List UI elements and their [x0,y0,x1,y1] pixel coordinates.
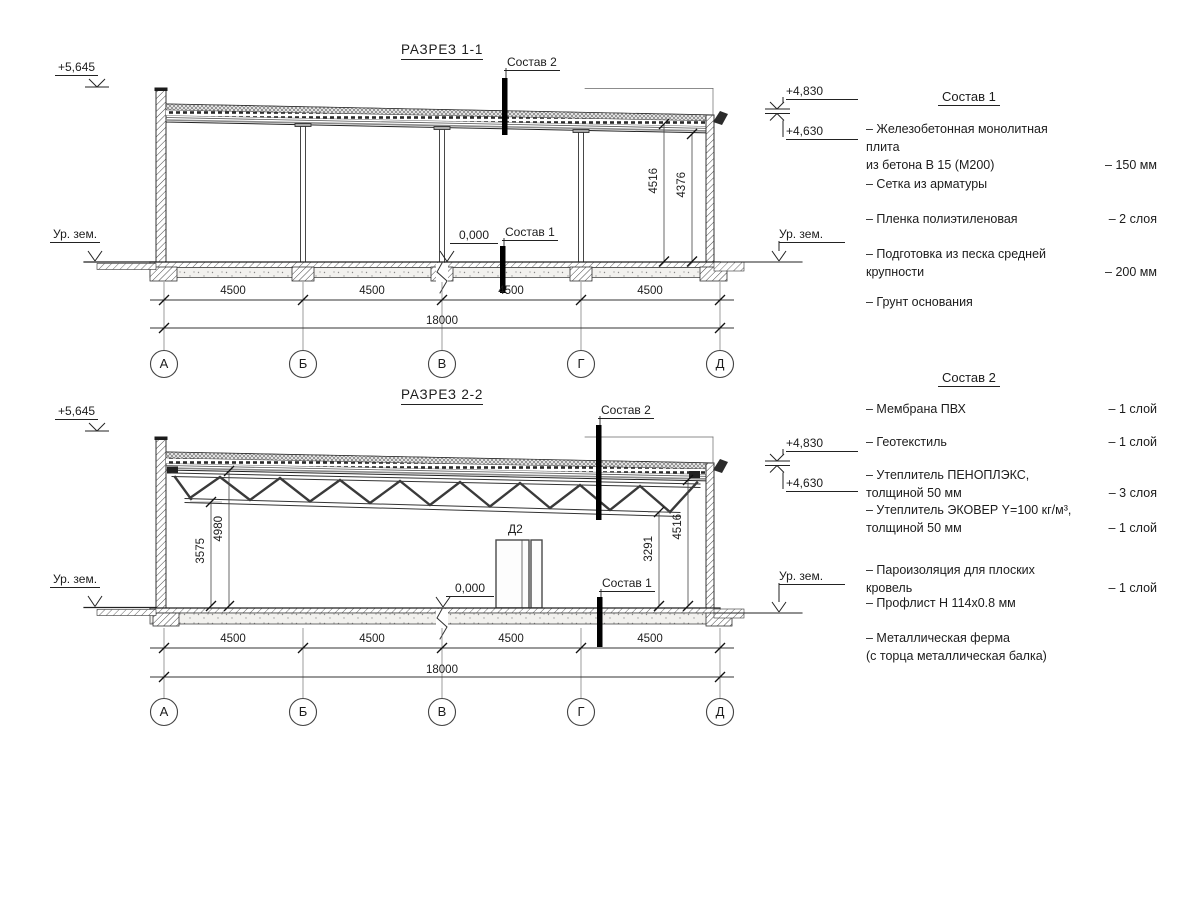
legend-item: – Профлист Н 114х0.8 мм [866,595,1157,613]
legend-item-name: – Утеплитель ЭКОВЕР Y=100 кг/м³, толщино… [866,502,1071,538]
legend-item-name: – Грунт основания [866,294,973,312]
legend2-title: Состав 2 [938,370,1000,387]
section2-elevation-roof-low: +4,630 [786,476,858,492]
section2-total-dim: 18000 [418,664,466,676]
legend-item-name: – Подготовка из песка средней крупности [866,246,1046,282]
legend-item: – Мембрана ПВХ – 1 слой [866,401,1157,419]
section1-axis-v: В [428,356,456,371]
section2-axis-v: В [428,704,456,719]
legend-item-name: – Профлист Н 114х0.8 мм [866,595,1016,613]
legend-item: – Железобетонная монолитная плита из бет… [866,121,1157,174]
section1-marker-sostav1: Состав 1 [502,225,558,241]
legend-item-value: – 200 мм [1099,264,1157,282]
section2-marker-sostav1: Состав 1 [599,576,655,592]
section2-axis-g: Г [567,704,595,719]
section1-axis-d: Д [706,356,734,371]
section2-marker-sostav2: Состав 2 [598,403,654,419]
section2-elevation-roof-top: +4,830 [786,436,858,452]
section1-elevation-roof-low: +4,630 [786,124,858,140]
section1-elevation-parapet: +5,645 [55,60,98,76]
section1-axis-g: Г [567,356,595,371]
legend-item-value: – 150 мм [1099,157,1157,175]
section1-title: РАЗРЕЗ 1-1 [401,42,483,60]
section2-axis-b: Б [289,704,317,719]
section2-title: РАЗРЕЗ 2-2 [401,387,483,405]
legend-item-name: – Металлическая ферма (с торца металличе… [866,630,1047,666]
section1-span-dim: 4500 [626,285,674,297]
section1-span-dim: 4500 [348,285,396,297]
section1-structure [84,88,802,294]
legend-item: – Геотекстиль – 1 слой [866,434,1157,452]
legend-item-name: – Геотекстиль [866,434,947,452]
legend-item-name: – Пленка полиэтиленовая [866,211,1018,229]
section2-dim-roof-clear: 4980 [213,516,225,542]
section2-zero-level: 0,000 [446,581,494,597]
legend-item-name: – Утеплитель ПЕНОПЛЭКС, толщиной 50 мм [866,467,1029,503]
section2-ground-label-right: Ур. зем. [779,569,845,585]
legend-item: – Металлическая ферма (с торца металличе… [866,630,1157,666]
section2-dim-truss-clear: 3575 [195,538,207,564]
legend-item: – Утеплитель ЭКОВЕР Y=100 кг/м³, толщино… [866,502,1157,538]
section2-span-dim: 4500 [209,633,257,645]
section1-zero-level: 0,000 [450,228,498,244]
legend-item: – Утеплитель ПЕНОПЛЭКС, толщиной 50 мм –… [866,467,1157,503]
section2-span-dim: 4500 [626,633,674,645]
section2-span-dim: 4500 [348,633,396,645]
legend-item-name: – Пароизоляция для плоских кровель [866,562,1084,598]
door-d2 [496,540,542,608]
section2-door-label: Д2 [508,522,523,536]
legend-item-value: – 1 слой [1103,401,1157,419]
legend-item-name: – Сетка из арматуры [866,176,987,194]
legend-item: – Грунт основания [866,294,1157,312]
section1-elevation-roof-top: +4,830 [786,84,858,100]
legend-item-value: – 2 слоя [1103,211,1157,229]
section2-axis-d: Д [706,704,734,719]
section1-span-dim: 4500 [487,285,535,297]
section1-marker-sostav2: Состав 2 [504,55,560,71]
legend-item: – Пароизоляция для плоских кровель – 1 с… [866,562,1157,598]
section2-structure [84,437,802,640]
section2-span-dim: 4500 [487,633,535,645]
section1-ground-label-left: Ур. зем. [50,227,100,243]
section1-dim-height-2: 4376 [676,172,688,198]
section2-dim-right-high: 4516 [672,514,684,540]
legend1-title: Состав 1 [938,89,1000,106]
legend-item-name: – Железобетонная монолитная плита из бет… [866,121,1084,174]
legend-item: – Сетка из арматуры [866,176,1157,194]
section2-elevation-parapet: +5,645 [55,404,98,420]
section2-ground-label-left: Ур. зем. [50,572,100,588]
legend-item-name: – Мембрана ПВХ [866,401,966,419]
legend-item-value: – 1 слой [1103,520,1157,538]
section2-dim-right-low: 3291 [643,536,655,562]
section1-span-dim: 4500 [209,285,257,297]
legend-item-value: – 1 слой [1103,434,1157,452]
section1-ground-label-right: Ур. зем. [779,227,845,243]
section1-axis-b: Б [289,356,317,371]
legend-item: – Подготовка из песка средней крупности … [866,246,1157,282]
legend-item-value: – 3 слоя [1103,485,1157,503]
section1-total-dim: 18000 [418,315,466,327]
section2-axis-a: А [150,704,178,719]
section1-dim-height-1: 4516 [648,168,660,194]
section1-axis-a: А [150,356,178,371]
drawing-sheet: РАЗРЕЗ 1-1 +5,645 Состав 2 +4,830 +4,630… [0,0,1200,900]
legend-item: – Пленка полиэтиленовая – 2 слоя [866,211,1157,229]
